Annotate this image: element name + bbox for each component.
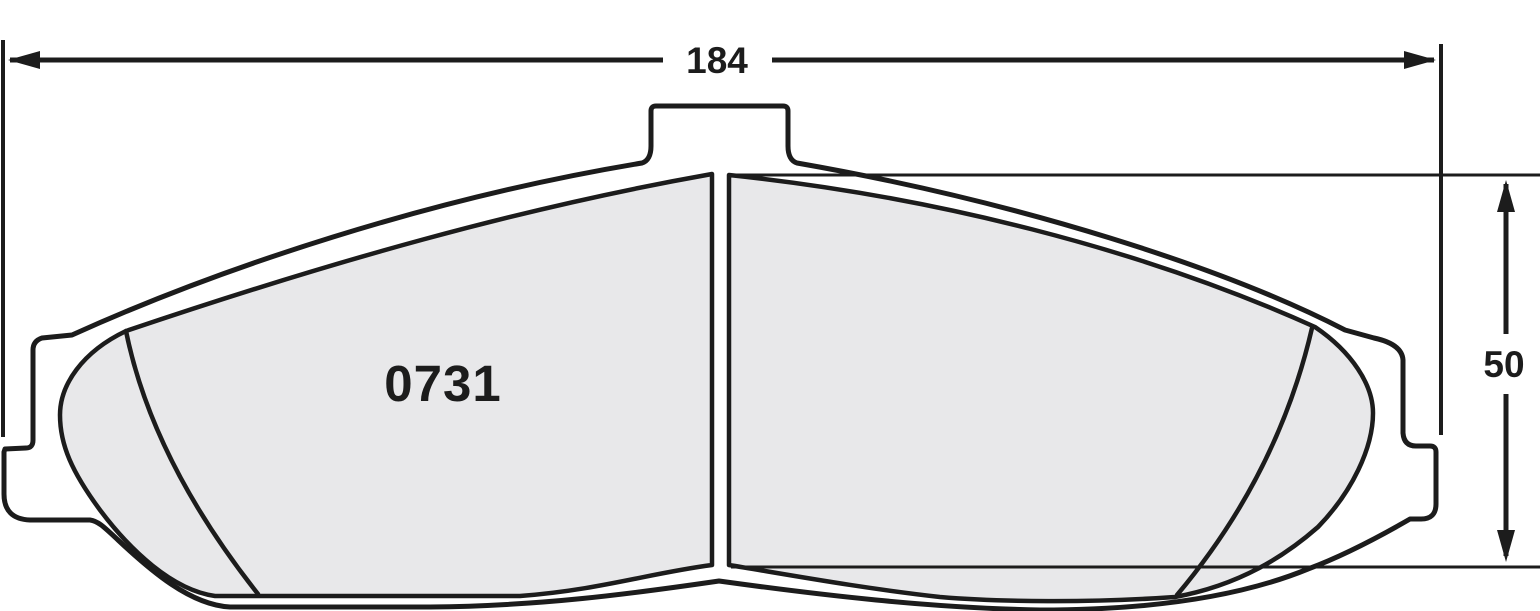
height-arrow-up-icon xyxy=(1497,180,1515,212)
width-arrow-right-icon xyxy=(1404,51,1436,69)
width-dimension-label: 184 xyxy=(686,40,748,81)
drawing-canvas: 0731 184 50 xyxy=(0,0,1540,611)
friction-pad-right xyxy=(729,175,1373,601)
brake-pad-technical-drawing: 0731 184 50 xyxy=(0,0,1540,611)
height-dimension-label: 50 xyxy=(1483,344,1524,385)
height-arrow-down-icon xyxy=(1497,530,1515,562)
width-arrow-left-icon xyxy=(8,51,40,69)
part-number-label: 0731 xyxy=(384,355,501,412)
